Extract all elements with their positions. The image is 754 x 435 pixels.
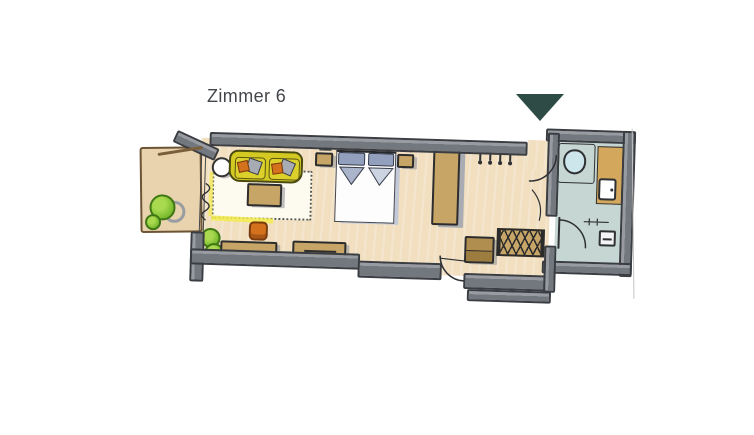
curtain xyxy=(202,184,210,220)
bed-fold-icon xyxy=(339,167,364,185)
pencil-guide-line xyxy=(627,129,639,298)
floor-plan xyxy=(144,128,655,329)
bathroom-door-swing xyxy=(558,220,586,248)
entrance-door xyxy=(530,155,557,182)
annotation-lines xyxy=(134,108,660,334)
hall-arc xyxy=(531,190,541,220)
entrance-arrow-icon xyxy=(516,94,564,121)
page-title: Zimmer 6 xyxy=(207,86,286,107)
bed-fold-icon xyxy=(368,168,393,186)
balcony-door xyxy=(159,146,201,155)
bathroom-door xyxy=(558,218,559,248)
towel-rail-icon xyxy=(584,219,608,226)
threshold-line xyxy=(440,258,464,261)
